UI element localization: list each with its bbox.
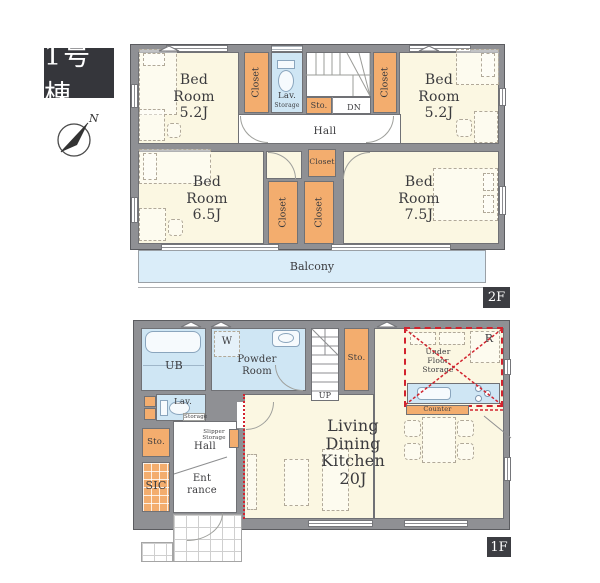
- building-label: 1号棟: [44, 48, 114, 98]
- lav-side-shelf-1: [144, 396, 156, 407]
- dining-chair-4: [457, 443, 474, 460]
- washer-label: W: [214, 336, 240, 348]
- toilet-bowl-2f: [278, 70, 294, 92]
- stove-burner-2: [484, 390, 491, 397]
- stairs-down-label: DN: [339, 103, 369, 112]
- toilet-tank-2f: [277, 60, 295, 69]
- pillow-se-1: [483, 173, 494, 191]
- ldk-line3: Kitchen: [293, 452, 413, 470]
- window-bottom-west: [308, 520, 373, 527]
- closet-nw-label: Closet: [251, 67, 262, 97]
- bedroom-sw-line3: 6.5J: [161, 207, 253, 224]
- closet-se-label: Closet: [314, 197, 325, 227]
- balcony-outer-rail: [138, 287, 486, 288]
- chair-ne: [456, 119, 472, 137]
- ldk-boundary-line: [243, 394, 245, 519]
- entrance-line1: Ent: [176, 473, 228, 485]
- pillow-sw: [143, 153, 157, 180]
- closet-sw: Closet: [268, 181, 298, 244]
- closet-mid-label: Closet: [308, 158, 336, 167]
- storage-1f-upper-label: Sto.: [344, 353, 369, 363]
- slipper-storage-box: [229, 429, 239, 448]
- lav-2f-storage-label: Storage: [271, 102, 303, 109]
- window-right-living: [504, 457, 511, 481]
- unit-bath-label: UB: [162, 360, 186, 373]
- window-left-nw: [131, 84, 138, 108]
- lav-1f-label: Lav.: [168, 397, 198, 407]
- dining-chair-3: [457, 420, 474, 437]
- bedroom-se-line1: Bed: [373, 174, 465, 191]
- floor-2f-tag: 2F: [483, 287, 510, 308]
- compass-icon: N: [50, 110, 106, 166]
- bedroom-nw-line2: Room: [148, 89, 240, 106]
- bedroom-ne-line3: 5.2J: [393, 105, 485, 122]
- pillow-nw: [143, 53, 165, 66]
- storage-1f-lower-label: Sto.: [142, 437, 170, 447]
- bedroom-sw-line2: Room: [161, 191, 253, 208]
- entrance-line2: rance: [176, 485, 228, 497]
- under-floor-storage-label: Under Floor Storage: [416, 348, 460, 375]
- floor-1f-plan: R Under Floor Storage Counter UB W Powde…: [133, 320, 510, 530]
- compass-north-label: N: [88, 112, 99, 125]
- balcony-label: Balcony: [290, 260, 334, 273]
- ufs-line3: Storage: [416, 366, 460, 375]
- bedroom-sw-line1: Bed: [161, 174, 253, 191]
- chair-nw: [167, 123, 181, 138]
- toilet-tank-1f: [160, 400, 168, 416]
- dining-table: [422, 417, 456, 463]
- ldk-line4: 20J: [293, 470, 413, 488]
- window-right-kitchen: [504, 359, 511, 375]
- lav-1f-storage-label: Storage: [183, 413, 205, 421]
- window-right-ne: [499, 88, 506, 106]
- ldk-line2: Dining: [293, 435, 413, 453]
- kitchen-cabinet-2: [439, 332, 465, 345]
- vanity-sink-bowl: [278, 333, 294, 343]
- closet-se: Closet: [304, 181, 334, 244]
- floorplan-page: 1号棟 N Closet Closet Closet Closet: [0, 0, 600, 583]
- slipper-storage-label: Slipper Storage: [200, 429, 228, 442]
- bedroom-nw-line1: Bed: [148, 72, 240, 89]
- balcony: Balcony: [138, 250, 486, 283]
- refrigerator-label: R: [481, 333, 497, 346]
- floor-2f-plan: Closet Closet Closet Closet: [130, 44, 505, 250]
- window-left-sw: [131, 197, 138, 223]
- closet-nw: Closet: [244, 52, 269, 113]
- kitchen-sink: [417, 387, 451, 400]
- window-top-lav: [271, 45, 303, 52]
- closet-sw-label: Closet: [278, 197, 289, 227]
- stove-burner-3: [475, 395, 482, 402]
- window-right-se: [499, 186, 506, 215]
- bedroom-sw-label: Bed Room 6.5J: [161, 174, 253, 224]
- stove-burner-1: [475, 385, 482, 392]
- slipper-line2: Storage: [200, 435, 228, 441]
- floor-1f-tag: 1F: [487, 537, 511, 557]
- kitchen-cabinet-1: [410, 332, 436, 345]
- bedroom-ne-line2: Room: [393, 89, 485, 106]
- storage-2f-label: Sto.: [306, 101, 332, 110]
- window-bottom-east: [404, 520, 468, 527]
- bathtub: [145, 331, 201, 353]
- bedroom-se-line3: 7.5J: [373, 207, 465, 224]
- ldk-label: Living Dining Kitchen 20J: [293, 417, 413, 487]
- stairs-2f: [306, 52, 371, 97]
- closet-ne-label: Closet: [380, 67, 391, 97]
- counter-label: Counter: [406, 406, 469, 414]
- stairs-up-label: UP: [311, 391, 339, 400]
- tv-board: [247, 454, 257, 510]
- bedroom-nw-line3: 5.2J: [148, 105, 240, 122]
- bedroom-se-line2: Room: [373, 191, 465, 208]
- bedroom-ne-line1: Bed: [393, 72, 485, 89]
- pillow-se-2: [483, 195, 494, 213]
- entrance-step: [141, 542, 173, 562]
- lav-side-shelf-2: [144, 408, 156, 420]
- lav-2f-label: Lav.: [271, 91, 303, 101]
- hall-1f-label: Hall: [187, 441, 223, 453]
- bedroom-ne-label: Bed Room 5.2J: [393, 72, 485, 122]
- ldk-line1: Living: [293, 417, 413, 435]
- bedroom-se-label: Bed Room 7.5J: [373, 174, 465, 224]
- bedroom-nw-label: Bed Room 5.2J: [148, 72, 240, 122]
- hall-2f-label: Hall: [305, 125, 345, 137]
- entrance-label: Ent rance: [176, 473, 228, 497]
- sic-label: SIC: [142, 480, 170, 493]
